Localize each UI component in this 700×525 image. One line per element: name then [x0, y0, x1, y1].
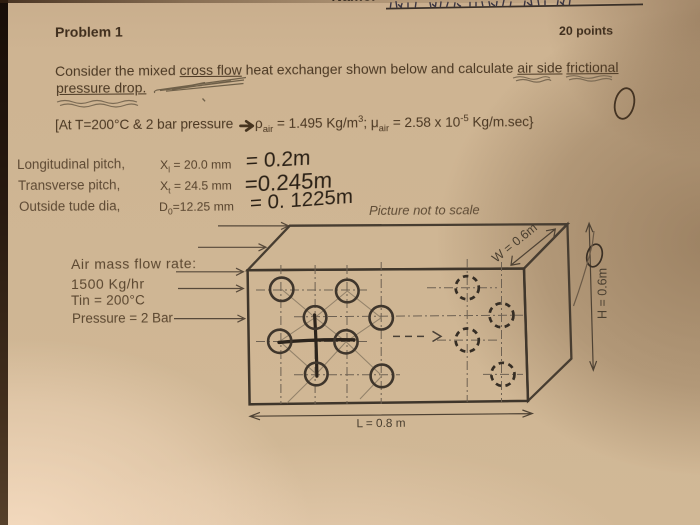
svg-text:H = 0.6m: H = 0.6m: [596, 268, 610, 319]
svg-text:L = 0.8 m: L = 0.8 m: [356, 416, 405, 430]
